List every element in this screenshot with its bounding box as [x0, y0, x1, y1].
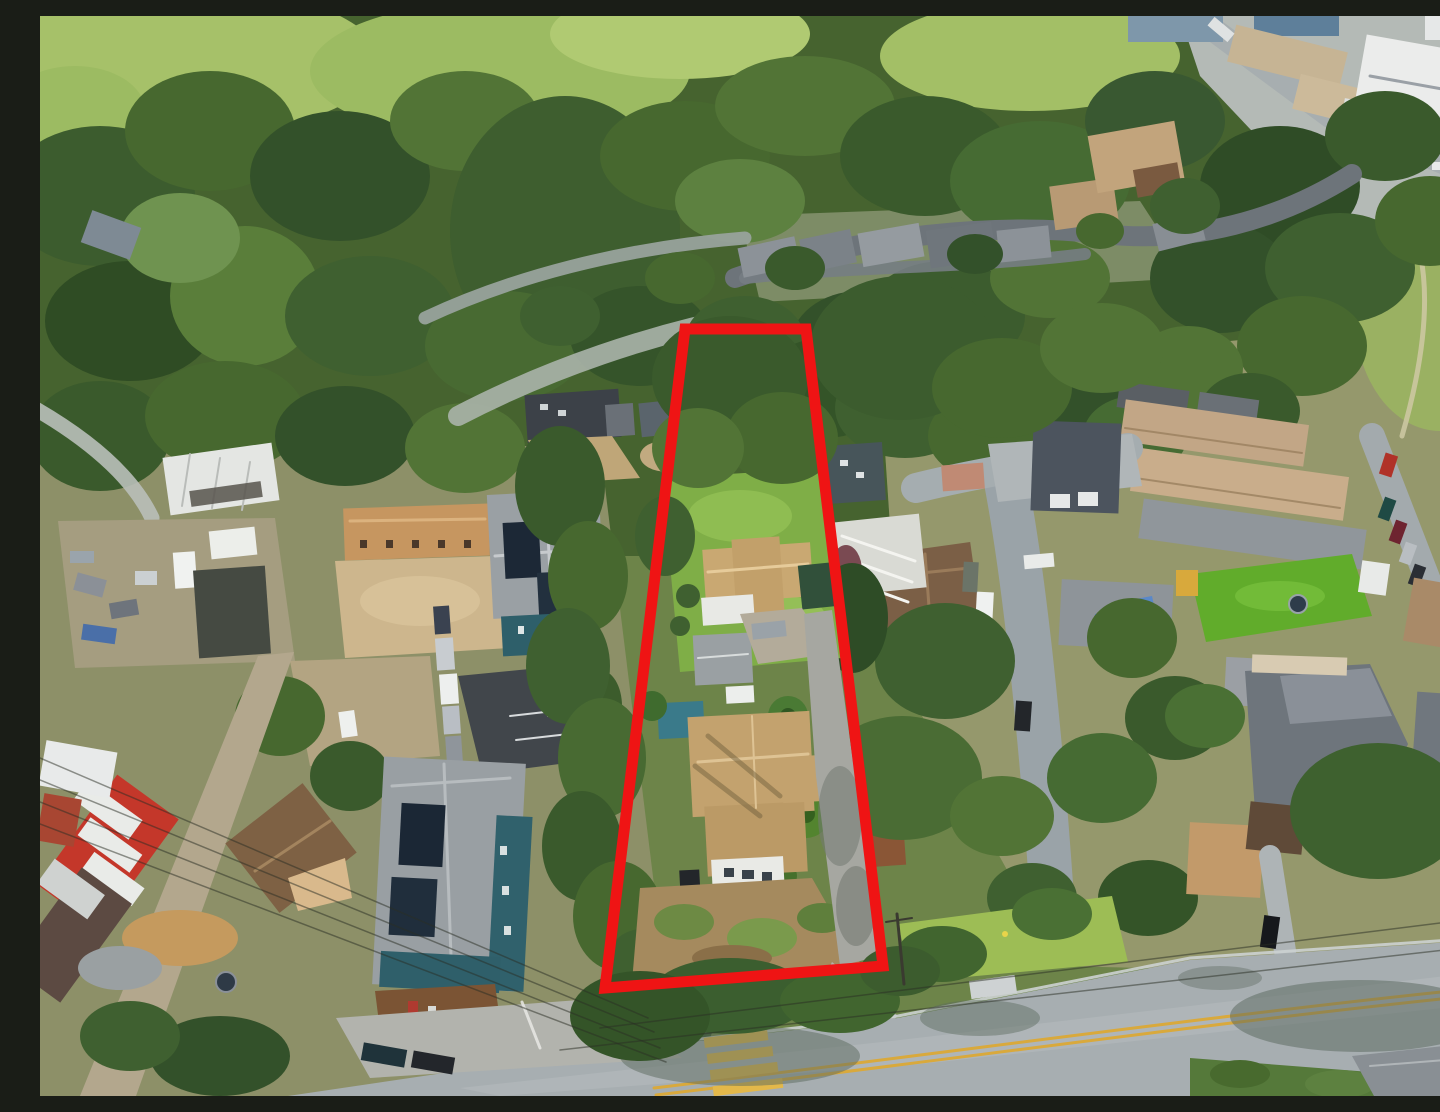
parked-car [442, 705, 461, 734]
window [502, 886, 509, 895]
skylight [558, 410, 566, 416]
neighborhood-tree [1076, 213, 1124, 249]
parked-car [435, 637, 455, 670]
parked-car [962, 562, 979, 593]
garage-roof-gray [605, 403, 635, 437]
shed-white [1358, 560, 1390, 596]
window [412, 540, 419, 548]
road-shadow [920, 1000, 1040, 1036]
plot-shrub [676, 584, 700, 608]
window [438, 540, 445, 548]
houseA-roof-green [798, 562, 834, 609]
skylight [540, 404, 548, 410]
neighborhood-tree [947, 234, 1003, 274]
window [742, 870, 754, 879]
solar-array [389, 877, 438, 937]
scene-layers [40, 16, 1440, 1096]
trampoline [1289, 595, 1307, 613]
forest-tree [1325, 91, 1440, 181]
forest-tree [1047, 733, 1157, 823]
forest-tree [310, 741, 390, 811]
garage-door-white [1078, 492, 1098, 506]
forest-tree [1087, 598, 1177, 678]
road-tree [645, 252, 715, 304]
parked-car [1432, 162, 1440, 170]
parked-car [433, 605, 451, 634]
shed-yellow [1176, 570, 1198, 596]
forest-tree [1040, 303, 1164, 393]
gravel-pile [78, 946, 162, 990]
lawn-light-patch [1235, 581, 1325, 611]
corner-tree [80, 1001, 180, 1071]
parked-car-white [726, 685, 755, 703]
roadside-bush [1210, 1060, 1270, 1088]
house-wall-beige [1252, 654, 1348, 675]
aerial-photo-svg [40, 16, 1440, 1096]
van-white [173, 551, 197, 588]
parked-car [1023, 553, 1054, 570]
parked-car [1014, 700, 1032, 731]
industrial-building [1128, 16, 1223, 42]
dirt-texture [360, 576, 480, 626]
house-orange-ridge [350, 519, 485, 521]
parked-car [439, 673, 459, 704]
forest-tree [950, 776, 1054, 856]
garage-door-white [1050, 494, 1070, 508]
shed-roof-gray [693, 633, 754, 686]
window [500, 846, 507, 855]
forest-tree [120, 193, 240, 283]
wildflowers [1002, 931, 1008, 937]
road-tree [520, 286, 600, 346]
window [386, 540, 393, 548]
neighborhood-tree [1150, 178, 1220, 234]
aerial-photo: Aerial real-estate photo of a suburban n… [40, 16, 1440, 1096]
forest-tree [275, 386, 415, 486]
skylight [840, 460, 848, 466]
neighborhood-tree [765, 246, 825, 290]
plot-shrub [670, 616, 690, 636]
industrial-building [1425, 16, 1440, 40]
window [504, 926, 511, 935]
house-orange [343, 503, 490, 560]
forest-tree [1165, 684, 1245, 748]
parked-car [445, 735, 463, 762]
front-strip-tree [1012, 888, 1092, 940]
window [762, 872, 772, 881]
hillside-house-roof [996, 225, 1051, 262]
deck-item-red [408, 1001, 418, 1013]
junk-pile [70, 551, 94, 563]
building-dark-roof [193, 566, 271, 659]
window [464, 540, 471, 548]
forest-tree [875, 603, 1015, 719]
window [518, 626, 524, 634]
trampoline [216, 972, 236, 992]
house-roof-dark-blue [1030, 420, 1121, 513]
skylight [856, 472, 864, 478]
forest-tree [675, 159, 805, 243]
solar-array [398, 803, 445, 867]
junk-pile [135, 571, 157, 585]
window [724, 868, 734, 877]
backyard-shrub [654, 904, 714, 940]
lawn-patch [688, 490, 792, 542]
patio-pink [941, 463, 985, 492]
window [360, 540, 367, 548]
trailer-white [209, 527, 258, 560]
